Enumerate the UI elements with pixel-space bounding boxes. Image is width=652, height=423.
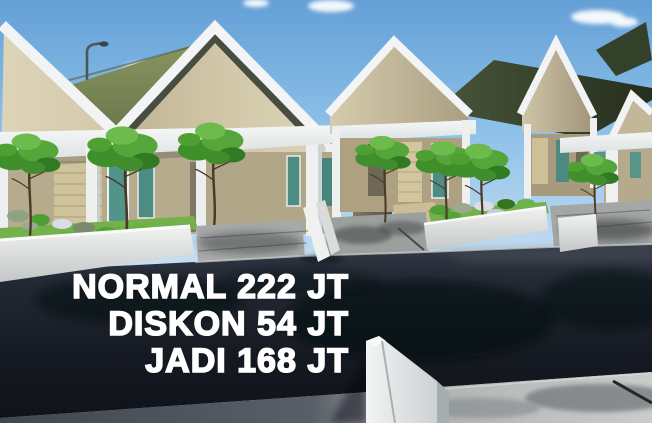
planter-wall <box>558 214 598 252</box>
teal-window <box>630 152 641 178</box>
column <box>524 124 531 198</box>
driveway-2 <box>324 212 429 258</box>
tree-shadow <box>198 232 302 254</box>
cloud <box>308 0 354 12</box>
cloud <box>610 17 638 27</box>
promo-image: NORMAL 222 JT DISKON 54 JT JADI 168 JT <box>0 0 652 423</box>
promo-line-jadi: JADI 168 JT <box>72 343 349 380</box>
stone-accent-wall <box>532 138 548 184</box>
leaf-shadow <box>378 221 426 235</box>
promo-text-block: NORMAL 222 JT DISKON 54 JT JADI 168 JT <box>72 269 349 380</box>
promo-line-normal: NORMAL 222 JT <box>72 269 349 306</box>
column <box>332 128 340 214</box>
teal-window <box>287 156 300 206</box>
teal-window <box>138 162 154 218</box>
promo-line-diskon: DISKON 54 JT <box>72 306 349 343</box>
